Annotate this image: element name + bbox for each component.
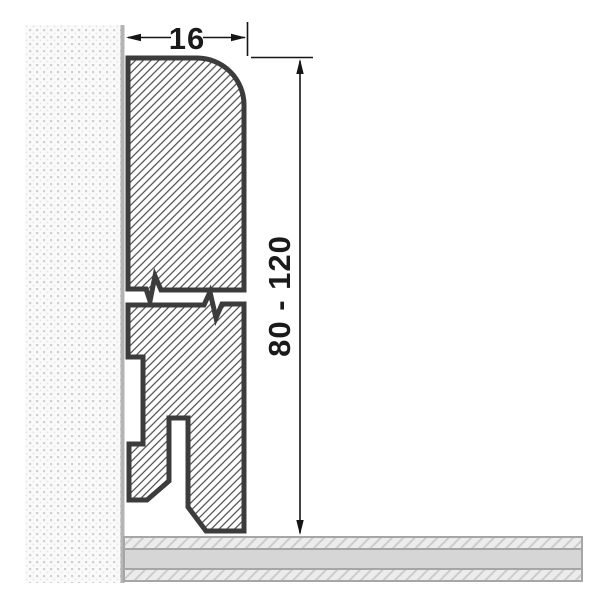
- skirting-profile-upper-section: [128, 58, 244, 301]
- skirting-profile-lower-section: [128, 292, 244, 531]
- floor: [124, 537, 582, 581]
- arrowhead-right-icon: [231, 34, 246, 41]
- arrowhead-down-icon: [296, 520, 303, 535]
- height-value-label: 80 - 120: [262, 235, 297, 357]
- floor-top-layer: [124, 537, 582, 549]
- wall-texture: [25, 25, 121, 583]
- skirting-profile-diagram: 16 80 - 120: [0, 0, 604, 604]
- arrowhead-left-icon: [126, 34, 141, 41]
- width-dimension: 16: [126, 21, 248, 56]
- height-dimension: 80 - 120: [251, 58, 313, 536]
- floor-core-layer: [124, 549, 582, 569]
- floor-bottom-layer: [124, 569, 582, 581]
- width-value-label: 16: [169, 21, 205, 56]
- wall-edge-line: [121, 25, 125, 583]
- technical-drawing-canvas: 16 80 - 120: [0, 0, 604, 604]
- arrowhead-up-icon: [296, 59, 303, 74]
